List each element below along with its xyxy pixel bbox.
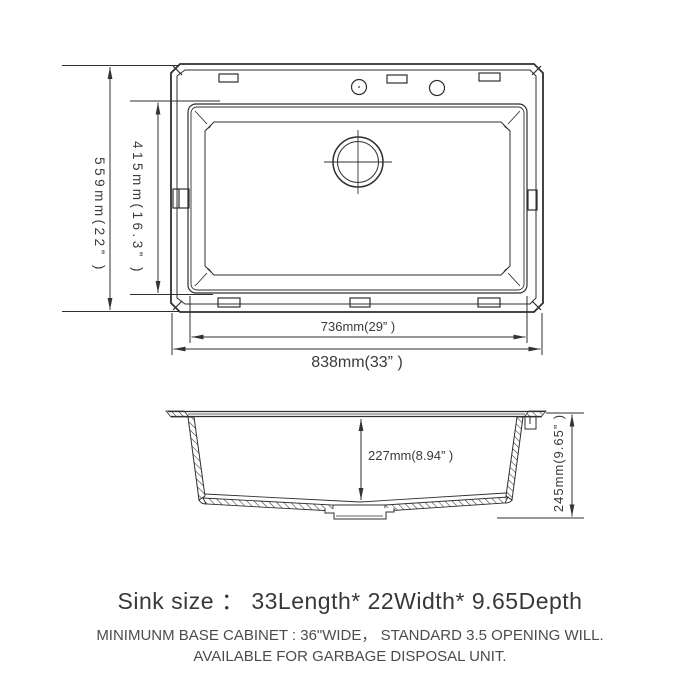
side-view: 227mm(8.94” ) 245mm(9.65” ) <box>166 411 584 519</box>
drain-fitting <box>325 508 394 519</box>
sink-basin <box>188 104 527 293</box>
dim-label-inner-width: 736mm(29” ) <box>321 319 395 334</box>
technical-drawing: 559mm(22” ) 415mm(16.3” ) 736mm(29” ) 83… <box>0 0 700 580</box>
side-rim <box>166 411 546 417</box>
dim-label-inner-height: 415mm(16.3” ) <box>130 141 145 275</box>
side-clip-right <box>525 417 536 429</box>
cabinet-note-line2: AVAILABLE FOR GARBAGE DISPOSAL UNIT. <box>0 646 700 667</box>
dim-label-overall-depth: 245mm(9.65” ) <box>551 414 566 512</box>
cabinet-note: MINIMUNM BASE CABINET : 36"WIDE， STANDAR… <box>0 625 700 667</box>
dimension-overall-height: 559mm(22” ) <box>62 66 179 312</box>
bowl-walls <box>188 417 523 504</box>
mounting-clips-top <box>219 73 500 83</box>
dimension-inner-depth: 227mm(8.94” ) <box>361 419 453 500</box>
caption-block: Sink size ： 33Length* 22Width* 9.65Depth… <box>0 582 700 667</box>
dim-label-inner-depth: 227mm(8.94” ) <box>368 448 453 463</box>
top-view: 559mm(22” ) 415mm(16.3” ) 736mm(29” ) 83… <box>62 64 543 371</box>
cabinet-note-line1: MINIMUNM BASE CABINET : 36"WIDE， STANDAR… <box>0 625 700 646</box>
mounting-clip-left <box>173 189 189 208</box>
faucet-hole-right <box>430 81 445 96</box>
dim-label-overall-width: 838mm(33” ) <box>311 354 403 371</box>
drain-circle <box>324 130 392 194</box>
bowl-bottom <box>203 493 508 511</box>
dim-label-overall-height: 559mm(22” ) <box>92 157 107 273</box>
faucet-hole-left <box>352 80 367 95</box>
sink-size-title: Sink size ： 33Length* 22Width* 9.65Depth <box>0 582 700 616</box>
mounting-clips-bottom <box>218 298 500 307</box>
page: { "drawing": { "line_color": "#2f2f2f", … <box>0 0 700 700</box>
